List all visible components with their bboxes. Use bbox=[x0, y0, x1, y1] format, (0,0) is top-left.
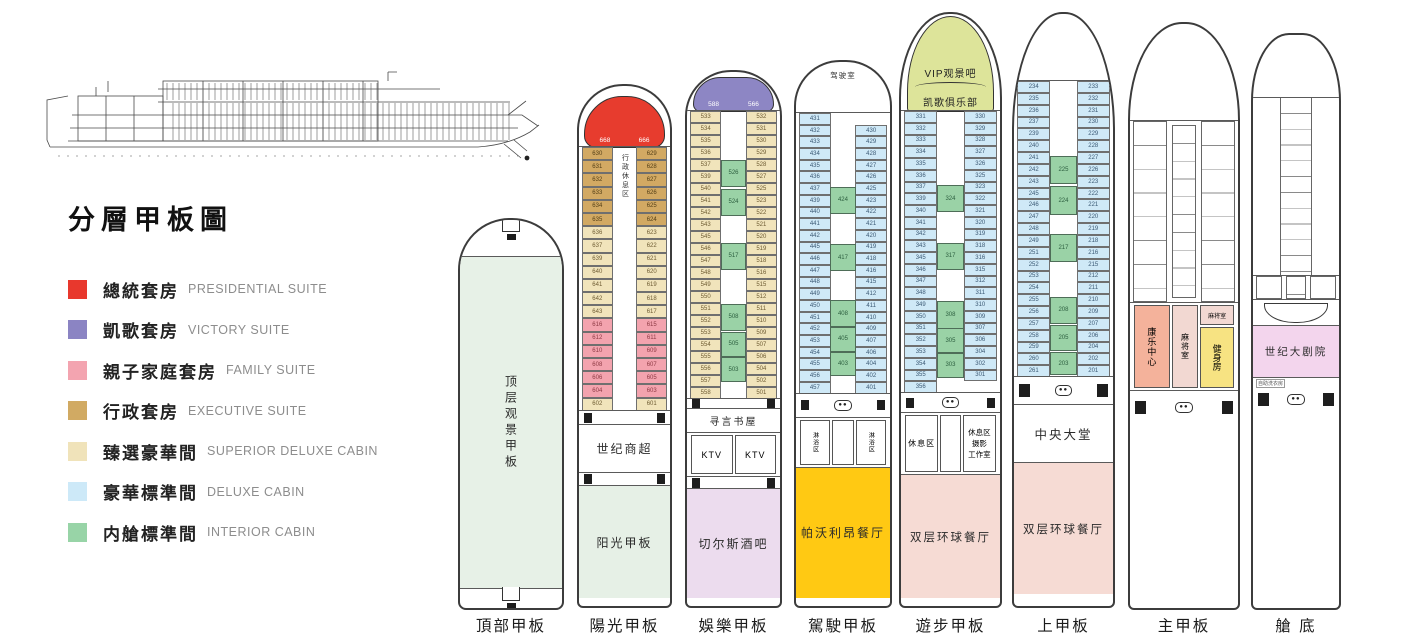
cabin-643: 643 bbox=[582, 305, 613, 318]
cabin-451: 451 bbox=[799, 312, 831, 324]
hull-outline: 世纪大剧院●●自助洗衣房 bbox=[1251, 33, 1341, 610]
wheelhouse-label: 驾驶室 bbox=[796, 70, 890, 81]
cabin-304: 304 bbox=[964, 346, 997, 358]
cabin-row: 334327 bbox=[904, 146, 997, 158]
corridor bbox=[613, 305, 637, 318]
cabin-259: 259 bbox=[1017, 342, 1050, 354]
cabin-349: 349 bbox=[904, 299, 937, 311]
corridor-column bbox=[1286, 276, 1305, 298]
hull-outline: 2342332352322362312372302392292402282412… bbox=[1012, 12, 1115, 608]
deck-bow bbox=[1130, 24, 1238, 120]
cabin-403: 403 bbox=[830, 352, 855, 377]
cabin-220: 220 bbox=[1077, 211, 1110, 223]
stairwell-mark bbox=[1258, 393, 1269, 406]
cabin-542: 542 bbox=[690, 207, 721, 219]
corridor-ladder bbox=[1253, 97, 1339, 275]
cabin-row: 449412 bbox=[799, 288, 887, 300]
cabin-527: 527 bbox=[746, 171, 777, 183]
corridor bbox=[613, 253, 637, 266]
bow-cabin-numbers: 588566 bbox=[694, 101, 774, 108]
cabin-342: 342 bbox=[904, 229, 937, 241]
cabin-546: 546 bbox=[690, 243, 721, 255]
cabin-437: 437 bbox=[799, 183, 831, 195]
cabin-510: 510 bbox=[746, 315, 777, 327]
cabin-218: 218 bbox=[1077, 235, 1110, 247]
cabin-605: 605 bbox=[636, 371, 667, 384]
cabin-450: 450 bbox=[799, 300, 831, 312]
corridor bbox=[831, 160, 856, 172]
facility-room-label: 休息区 bbox=[908, 438, 935, 449]
cabin-321: 321 bbox=[964, 205, 997, 217]
corridor bbox=[613, 239, 637, 252]
cabin-430: 430 bbox=[855, 125, 887, 137]
bow-suite-area: 668666 bbox=[584, 96, 664, 148]
corridor bbox=[937, 111, 963, 123]
cabin-339: 339 bbox=[904, 193, 937, 205]
deck-bow: 驾驶室 bbox=[796, 62, 890, 112]
deck-area: 世纪大剧院 bbox=[1253, 325, 1339, 377]
cabin-607: 607 bbox=[636, 358, 667, 371]
cabin-509: 509 bbox=[746, 327, 777, 339]
corridor bbox=[937, 123, 963, 135]
cabin-grid: 5335325345315355305365295375285395275405… bbox=[687, 110, 780, 398]
corridor bbox=[937, 146, 963, 158]
cabin-532: 532 bbox=[746, 111, 777, 123]
cabin-512: 512 bbox=[746, 291, 777, 303]
deck-plan-page: 分層甲板圖 總統套房PRESIDENTIAL SUITE凱歌套房VICTORY … bbox=[0, 0, 1407, 640]
cabin-253: 253 bbox=[1017, 271, 1050, 283]
corridor bbox=[937, 287, 963, 299]
deck-bow: 668666 bbox=[579, 86, 670, 146]
cabin-547: 547 bbox=[690, 255, 721, 267]
deck-main-deck: 康乐中心麻将室麻将室健身房●●主甲板 bbox=[1128, 22, 1240, 640]
corridor bbox=[831, 148, 856, 160]
corridor bbox=[831, 171, 856, 183]
cabin-610: 610 bbox=[582, 345, 613, 358]
cabin-340: 340 bbox=[904, 205, 937, 217]
hull-outline: 5885665335325345315355305365295375285395… bbox=[685, 70, 782, 608]
cabin-228: 228 bbox=[1077, 140, 1110, 152]
cabin-616: 616 bbox=[582, 318, 613, 331]
cabin-row: 431 bbox=[799, 113, 887, 125]
cabin-417: 417 bbox=[830, 244, 855, 271]
cabin-row: 254211 bbox=[1017, 282, 1110, 294]
cabin-307: 307 bbox=[964, 323, 997, 335]
cabin-405: 405 bbox=[830, 327, 855, 352]
cabin-447: 447 bbox=[799, 265, 831, 277]
cabin-303: 303 bbox=[937, 353, 964, 378]
deck-hold-deck: 世纪大剧院●●自助洗衣房艙 底 bbox=[1251, 33, 1341, 640]
cabin-333: 333 bbox=[904, 135, 937, 147]
corridor bbox=[1050, 93, 1076, 105]
corridor bbox=[613, 384, 637, 397]
deck-name-label: 陽光甲板 bbox=[577, 614, 672, 640]
facility-room: KTV bbox=[691, 435, 733, 474]
cabin-row: 457401 bbox=[799, 382, 887, 394]
stairwell-mark bbox=[987, 398, 995, 408]
cabin-235: 235 bbox=[1017, 93, 1050, 105]
cabin-629: 629 bbox=[636, 147, 667, 160]
cabin-224: 224 bbox=[1050, 186, 1077, 215]
cabin-256: 256 bbox=[1017, 306, 1050, 318]
facility-room: 健身房 bbox=[1200, 327, 1234, 388]
cabin-535: 535 bbox=[690, 135, 721, 147]
cabin-640: 640 bbox=[582, 266, 613, 279]
cabin-440: 440 bbox=[799, 207, 831, 219]
cabin-528: 528 bbox=[746, 159, 777, 171]
cabin-625: 625 bbox=[636, 200, 667, 213]
bow-area-label: VIP观景吧 bbox=[908, 63, 993, 82]
facility-room: 康乐中心 bbox=[1134, 305, 1170, 388]
facility-room: 休息区 bbox=[905, 415, 938, 472]
deck-area-label: 中央大堂 bbox=[1034, 424, 1092, 443]
corridor bbox=[937, 276, 963, 288]
cabin-348: 348 bbox=[904, 287, 937, 299]
stair-landing: ●●自助洗衣房 bbox=[1253, 377, 1339, 421]
cabin-number: 588 bbox=[708, 101, 719, 108]
bow-area-labels: VIP观景吧凯歌俱乐部 bbox=[908, 17, 993, 111]
cabin-551: 551 bbox=[690, 303, 721, 315]
cabin-row: 240228 bbox=[1017, 140, 1110, 152]
cabin-210: 210 bbox=[1077, 294, 1110, 306]
cabin-row: 641619 bbox=[582, 279, 667, 292]
cabin-row: 234233 bbox=[1017, 81, 1110, 93]
cabin-202: 202 bbox=[1077, 353, 1110, 365]
cabin-312: 312 bbox=[964, 276, 997, 288]
elevator-icon: ●● bbox=[1055, 385, 1072, 396]
cabin-row: 635624 bbox=[582, 213, 667, 226]
cabin-211: 211 bbox=[1077, 282, 1110, 294]
cabin-row: 342319 bbox=[904, 229, 997, 241]
cabin-254: 254 bbox=[1017, 282, 1050, 294]
stairwell-mark bbox=[657, 474, 665, 484]
facility-room-label: 摄影 bbox=[972, 438, 987, 449]
corridor bbox=[721, 231, 745, 243]
corridor bbox=[613, 213, 637, 226]
cabin-334: 334 bbox=[904, 146, 937, 158]
corridor bbox=[721, 135, 745, 147]
deck-name-label: 娛樂甲板 bbox=[685, 614, 782, 640]
cabin-308: 308 bbox=[937, 301, 964, 328]
cabin-225: 225 bbox=[1050, 156, 1077, 185]
deck-area-label: 双层环球餐厅 bbox=[910, 529, 991, 545]
cabin-456: 456 bbox=[799, 370, 831, 382]
cabin-row: 616615 bbox=[582, 318, 667, 331]
corridor bbox=[1050, 105, 1076, 117]
cabin-522: 522 bbox=[746, 207, 777, 219]
room-column bbox=[1310, 276, 1336, 299]
cabin-609: 609 bbox=[636, 345, 667, 358]
elevator-icon: ●● bbox=[1287, 394, 1304, 405]
cabin-row: 332329 bbox=[904, 123, 997, 135]
cabin-grid: 3313303323293333283343273353263363253373… bbox=[901, 110, 1000, 392]
crew-room-grid bbox=[1130, 120, 1238, 302]
cabin-355: 355 bbox=[904, 370, 937, 382]
corridor bbox=[613, 226, 637, 239]
cabin-row: 634625 bbox=[582, 200, 667, 213]
facility-room-label: 休息区 bbox=[968, 427, 991, 438]
cabin-328: 328 bbox=[964, 135, 997, 147]
cabin-511: 511 bbox=[746, 303, 777, 315]
facility-stack: 麻将室健身房 bbox=[1200, 305, 1234, 388]
cabin-621: 621 bbox=[636, 253, 667, 266]
corridor-column bbox=[1172, 125, 1196, 299]
corridor bbox=[1050, 117, 1076, 129]
cabin-454: 454 bbox=[799, 347, 831, 359]
deck-promenade-deck: VIP观景吧凯歌俱乐部33133033232933332833432733532… bbox=[899, 12, 1002, 640]
hull-gap bbox=[901, 598, 1000, 606]
cabin-row: 604603 bbox=[582, 384, 667, 397]
bow-notch bbox=[502, 587, 520, 601]
corridor bbox=[937, 170, 963, 182]
cabin-229: 229 bbox=[1077, 128, 1110, 140]
cabin-402: 402 bbox=[855, 370, 887, 382]
cabin-504: 504 bbox=[746, 363, 777, 375]
corridor bbox=[721, 219, 745, 231]
cabin-531: 531 bbox=[746, 123, 777, 135]
cabin-632: 632 bbox=[582, 173, 613, 186]
cabin-249: 249 bbox=[1017, 235, 1050, 247]
cabin-341: 341 bbox=[904, 217, 937, 229]
deck-name-label: 頂部甲板 bbox=[458, 614, 564, 640]
cabin-332: 332 bbox=[904, 123, 937, 135]
cabin-536: 536 bbox=[690, 147, 721, 159]
cabin-row: 442420 bbox=[799, 230, 887, 242]
deck-name-label: 艙 底 bbox=[1251, 614, 1341, 640]
cabin-636: 636 bbox=[582, 226, 613, 239]
cabin-335: 335 bbox=[904, 158, 937, 170]
cabin-row: 235232 bbox=[1017, 93, 1110, 105]
cabin-row: 545520 bbox=[690, 231, 777, 243]
corridor bbox=[831, 113, 856, 125]
cabin-247: 247 bbox=[1017, 211, 1050, 223]
cabin-627: 627 bbox=[636, 173, 667, 186]
cabin-231: 231 bbox=[1077, 105, 1110, 117]
cabin-637: 637 bbox=[582, 239, 613, 252]
corridor bbox=[721, 291, 745, 303]
cabin-row: 331330 bbox=[904, 111, 997, 123]
cabin-549: 549 bbox=[690, 279, 721, 291]
cabin-525: 525 bbox=[746, 183, 777, 195]
cabin-246: 246 bbox=[1017, 199, 1050, 211]
stairwell-mark bbox=[1135, 401, 1146, 414]
corridor bbox=[937, 217, 963, 229]
elevator-icon: ●● bbox=[942, 397, 959, 408]
cabin-452: 452 bbox=[799, 323, 831, 335]
cabin-row: 636623 bbox=[582, 226, 667, 239]
cabin-516: 516 bbox=[746, 267, 777, 279]
stair-landing bbox=[687, 398, 780, 408]
deck-area: 寻言书屋 bbox=[687, 408, 780, 432]
cabin-row: 434428 bbox=[799, 148, 887, 160]
cabin-grid: 2342332352322362312372302392292402282412… bbox=[1014, 80, 1113, 376]
cabin-515: 515 bbox=[746, 279, 777, 291]
cabin-455: 455 bbox=[799, 358, 831, 370]
cabin-322: 322 bbox=[964, 193, 997, 205]
cabin-517: 517 bbox=[721, 243, 746, 270]
deck-upper-deck: 2342332352322362312372302392292402282412… bbox=[1012, 12, 1115, 640]
corridor bbox=[831, 288, 856, 300]
cabin-320: 320 bbox=[964, 217, 997, 229]
cabin-row: 549515 bbox=[690, 279, 777, 291]
corridor bbox=[613, 266, 637, 279]
cabin-315: 315 bbox=[964, 264, 997, 276]
deck-area: 阳光甲板 bbox=[579, 485, 670, 598]
facility-room: 淋浴区 bbox=[800, 420, 830, 465]
stair-landing: ●● bbox=[796, 393, 890, 417]
cabin-422: 422 bbox=[855, 207, 887, 219]
cabin-506: 506 bbox=[746, 351, 777, 363]
cabin-523: 523 bbox=[746, 195, 777, 207]
cabin-502: 502 bbox=[746, 375, 777, 387]
stairwell-mark bbox=[906, 398, 914, 408]
deck-bow bbox=[460, 588, 562, 608]
cabin-223: 223 bbox=[1077, 176, 1110, 188]
cabin-240: 240 bbox=[1017, 140, 1050, 152]
cabin-row: 533532 bbox=[690, 111, 777, 123]
cabin-row: 336325 bbox=[904, 170, 997, 182]
room-column bbox=[1133, 121, 1167, 302]
cabin-257: 257 bbox=[1017, 318, 1050, 330]
deck-top-deck: 顶层观景甲板頂部甲板 bbox=[458, 218, 564, 640]
cabin-318: 318 bbox=[964, 240, 997, 252]
cabin-540: 540 bbox=[690, 183, 721, 195]
cabin-541: 541 bbox=[690, 195, 721, 207]
cabin-row: 441421 bbox=[799, 218, 887, 230]
elevator-icon: ●● bbox=[834, 400, 851, 411]
cabin-533: 533 bbox=[690, 111, 721, 123]
cabin-row: 534531 bbox=[690, 123, 777, 135]
corridor bbox=[613, 332, 637, 345]
deck-bow bbox=[460, 220, 562, 256]
cabin-row: 348311 bbox=[904, 287, 997, 299]
cabin-cell-empty bbox=[855, 113, 887, 125]
cabin-255: 255 bbox=[1017, 294, 1050, 306]
stair-landing: ●● bbox=[1130, 390, 1238, 424]
deck-area: 双层环球餐厅 bbox=[901, 474, 1000, 598]
cabin-grid: 6306296316286326276336266346256356246366… bbox=[579, 146, 670, 410]
cabin-550: 550 bbox=[690, 291, 721, 303]
cabin-420: 420 bbox=[855, 230, 887, 242]
cabin-347: 347 bbox=[904, 276, 937, 288]
cabin-row: 433429 bbox=[799, 136, 887, 148]
cabin-534: 534 bbox=[690, 123, 721, 135]
corridor bbox=[831, 125, 856, 137]
corridor bbox=[721, 123, 745, 135]
corridor bbox=[937, 229, 963, 241]
cabin-343: 343 bbox=[904, 240, 937, 252]
cabin-524: 524 bbox=[721, 189, 746, 216]
cabin-241: 241 bbox=[1017, 152, 1050, 164]
cabin-408: 408 bbox=[830, 300, 855, 327]
cabin-448: 448 bbox=[799, 277, 831, 289]
facility-room: 麻将室 bbox=[1172, 305, 1198, 388]
cabin-555: 555 bbox=[690, 351, 721, 363]
cabin-634: 634 bbox=[582, 200, 613, 213]
deck-name-label: 駕駛甲板 bbox=[794, 614, 892, 640]
cabin-622: 622 bbox=[636, 239, 667, 252]
corridor bbox=[937, 135, 963, 147]
cabin-431: 431 bbox=[799, 113, 831, 125]
cabin-311: 311 bbox=[964, 287, 997, 299]
cabin-number: 666 bbox=[639, 137, 650, 144]
elevator-icon: ●● bbox=[1175, 402, 1192, 413]
deck-bridge-deck: 驾驶室4314324304334294344284354274364264374… bbox=[794, 60, 892, 640]
cabin-445: 445 bbox=[799, 242, 831, 254]
cabin-602: 602 bbox=[582, 398, 613, 411]
cabin-226: 226 bbox=[1077, 164, 1110, 176]
stairwell-mark bbox=[1323, 393, 1334, 406]
cabin-611: 611 bbox=[636, 332, 667, 345]
stage-shape bbox=[1264, 303, 1328, 323]
cabin-203: 203 bbox=[1050, 352, 1077, 375]
cabin-row: 610609 bbox=[582, 345, 667, 358]
facility-room-label: 麻将室 bbox=[1208, 311, 1226, 320]
hull-gap bbox=[1130, 424, 1238, 608]
cabin-404: 404 bbox=[855, 358, 887, 370]
cabin-520: 520 bbox=[746, 231, 777, 243]
cabin-633: 633 bbox=[582, 187, 613, 200]
corridor bbox=[1050, 128, 1076, 140]
facility-room: 淋浴区 bbox=[856, 420, 886, 465]
cabin-543: 543 bbox=[690, 219, 721, 231]
cabin-412: 412 bbox=[855, 288, 887, 300]
cabin-354: 354 bbox=[904, 358, 937, 370]
deck-area-label: 双层环球餐厅 bbox=[1023, 521, 1104, 537]
cabin-row: 642618 bbox=[582, 292, 667, 305]
cabin-337: 337 bbox=[904, 182, 937, 194]
cabin-608: 608 bbox=[582, 358, 613, 371]
mast-mark bbox=[507, 603, 516, 609]
corridor bbox=[831, 277, 856, 289]
corridor bbox=[831, 382, 856, 394]
cabin-628: 628 bbox=[636, 160, 667, 173]
cabin-251: 251 bbox=[1017, 247, 1050, 259]
cabin-row: 640620 bbox=[582, 266, 667, 279]
cabin-236: 236 bbox=[1017, 105, 1050, 117]
deck-area-label: 切尔斯酒吧 bbox=[698, 535, 768, 552]
corridor bbox=[831, 230, 856, 242]
cabin-639: 639 bbox=[582, 253, 613, 266]
bow-suite-area: 588566 bbox=[693, 77, 775, 112]
facility-row: 康乐中心麻将室麻将室健身房 bbox=[1130, 302, 1238, 390]
cabin-615: 615 bbox=[636, 318, 667, 331]
cabin-grid: 4314324304334294344284354274364264374254… bbox=[796, 112, 890, 393]
stair-landing bbox=[579, 472, 670, 485]
mast-mark bbox=[507, 234, 516, 240]
stairwell-mark bbox=[877, 400, 885, 410]
cabin-221: 221 bbox=[1077, 199, 1110, 211]
cabin-330: 330 bbox=[964, 111, 997, 123]
cabin-row: 435427 bbox=[799, 160, 887, 172]
deck-area: 世纪商超 bbox=[579, 424, 670, 472]
cabin-230: 230 bbox=[1077, 117, 1110, 129]
deck-bow: VIP观景吧凯歌俱乐部 bbox=[901, 14, 1000, 110]
cabin-305: 305 bbox=[937, 328, 964, 353]
cabin-409: 409 bbox=[855, 323, 887, 335]
corridor bbox=[1050, 81, 1076, 93]
deck-name-label: 遊步甲板 bbox=[899, 614, 1002, 640]
corridor bbox=[937, 158, 963, 170]
cabin-529: 529 bbox=[746, 147, 777, 159]
facility-room-label: KTV bbox=[745, 450, 766, 460]
stairwell-mark bbox=[767, 478, 775, 488]
cabin-227: 227 bbox=[1077, 152, 1110, 164]
deck-area: 切尔斯酒吧 bbox=[687, 488, 780, 598]
corridor bbox=[613, 371, 637, 384]
facility-room-label: 健身房 bbox=[1211, 344, 1224, 371]
cabin-row: 608607 bbox=[582, 358, 667, 371]
